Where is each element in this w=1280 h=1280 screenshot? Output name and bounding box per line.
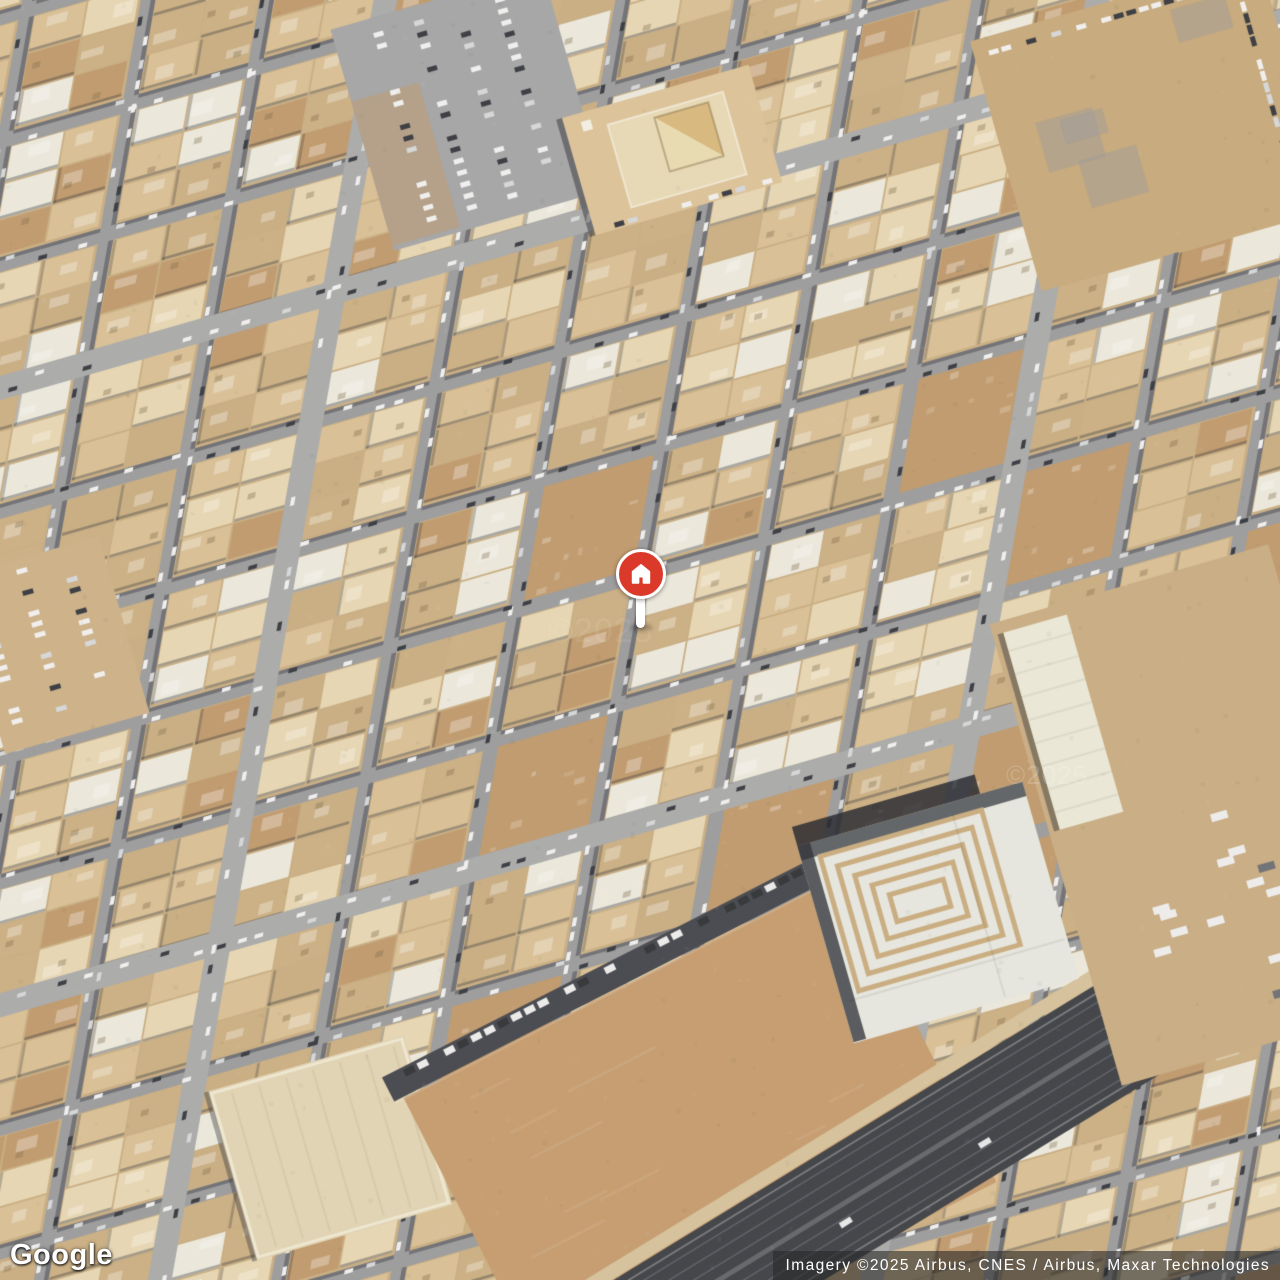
google-logo[interactable]: Google [10, 1239, 113, 1272]
pin-circle[interactable] [616, 549, 666, 599]
map-viewport[interactable]: ©2025 ©2025 Google Imagery ©2025 Airbus,… [0, 0, 1280, 1280]
imagery-attribution: Imagery ©2025 Airbus, CNES / Airbus, Max… [773, 1251, 1280, 1280]
satellite-imagery[interactable] [0, 0, 1280, 1280]
home-icon [628, 561, 654, 587]
